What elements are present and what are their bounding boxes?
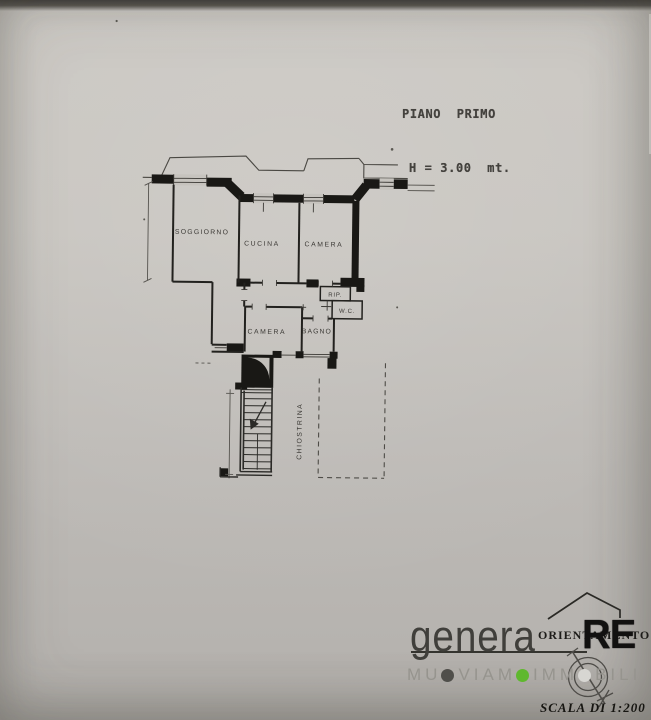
scanned-floor-plan-photo: SOGGIORNO CUCINA CAMERA CAMERA BAGNO RIP… — [0, 0, 651, 720]
room-labels: SOGGIORNO CUCINA CAMERA CAMERA BAGNO RIP… — [172, 229, 356, 461]
scale-label: SCALA DI 1:200 — [540, 700, 646, 716]
room-label-bagno: BAGNO — [302, 328, 332, 335]
tagline-dot-light — [578, 669, 591, 682]
chiostrina-dashed-boundary — [318, 362, 385, 478]
room-label-cucina: CUCINA — [244, 241, 280, 248]
room-label-camera-1: CAMERA — [305, 241, 344, 248]
room-label-wc: W.C. — [339, 309, 355, 315]
exterior-walls — [148, 174, 408, 478]
room-label-camera-2: CAMERA — [247, 329, 286, 336]
floor-plan-drawing: SOGGIORNO CUCINA CAMERA CAMERA BAGNO RIP… — [0, 0, 651, 720]
tagline-dot-dark — [441, 669, 454, 682]
tagline-segment: IMM — [533, 665, 578, 685]
room-label-soggiorno: SOGGIORNO — [175, 229, 229, 237]
tick-marks — [241, 203, 333, 322]
tagline-dot-green — [516, 669, 529, 682]
room-label-chiostrina: CHIOSTRINA — [296, 403, 304, 460]
room-label-rip: RIP. — [328, 293, 342, 299]
brand-tagline: MU VIAM IMM BILI — [407, 665, 641, 685]
tagline-segment: VIAM — [458, 665, 516, 685]
brand-suffix: RE — [582, 611, 635, 658]
staircase — [220, 387, 273, 477]
dimension-lines — [141, 181, 435, 481]
tagline-segment: MU — [407, 665, 441, 685]
tagline-segment: BILI — [595, 665, 641, 685]
stair-direction-arrow — [250, 419, 259, 430]
brand-name: genera — [410, 612, 536, 662]
